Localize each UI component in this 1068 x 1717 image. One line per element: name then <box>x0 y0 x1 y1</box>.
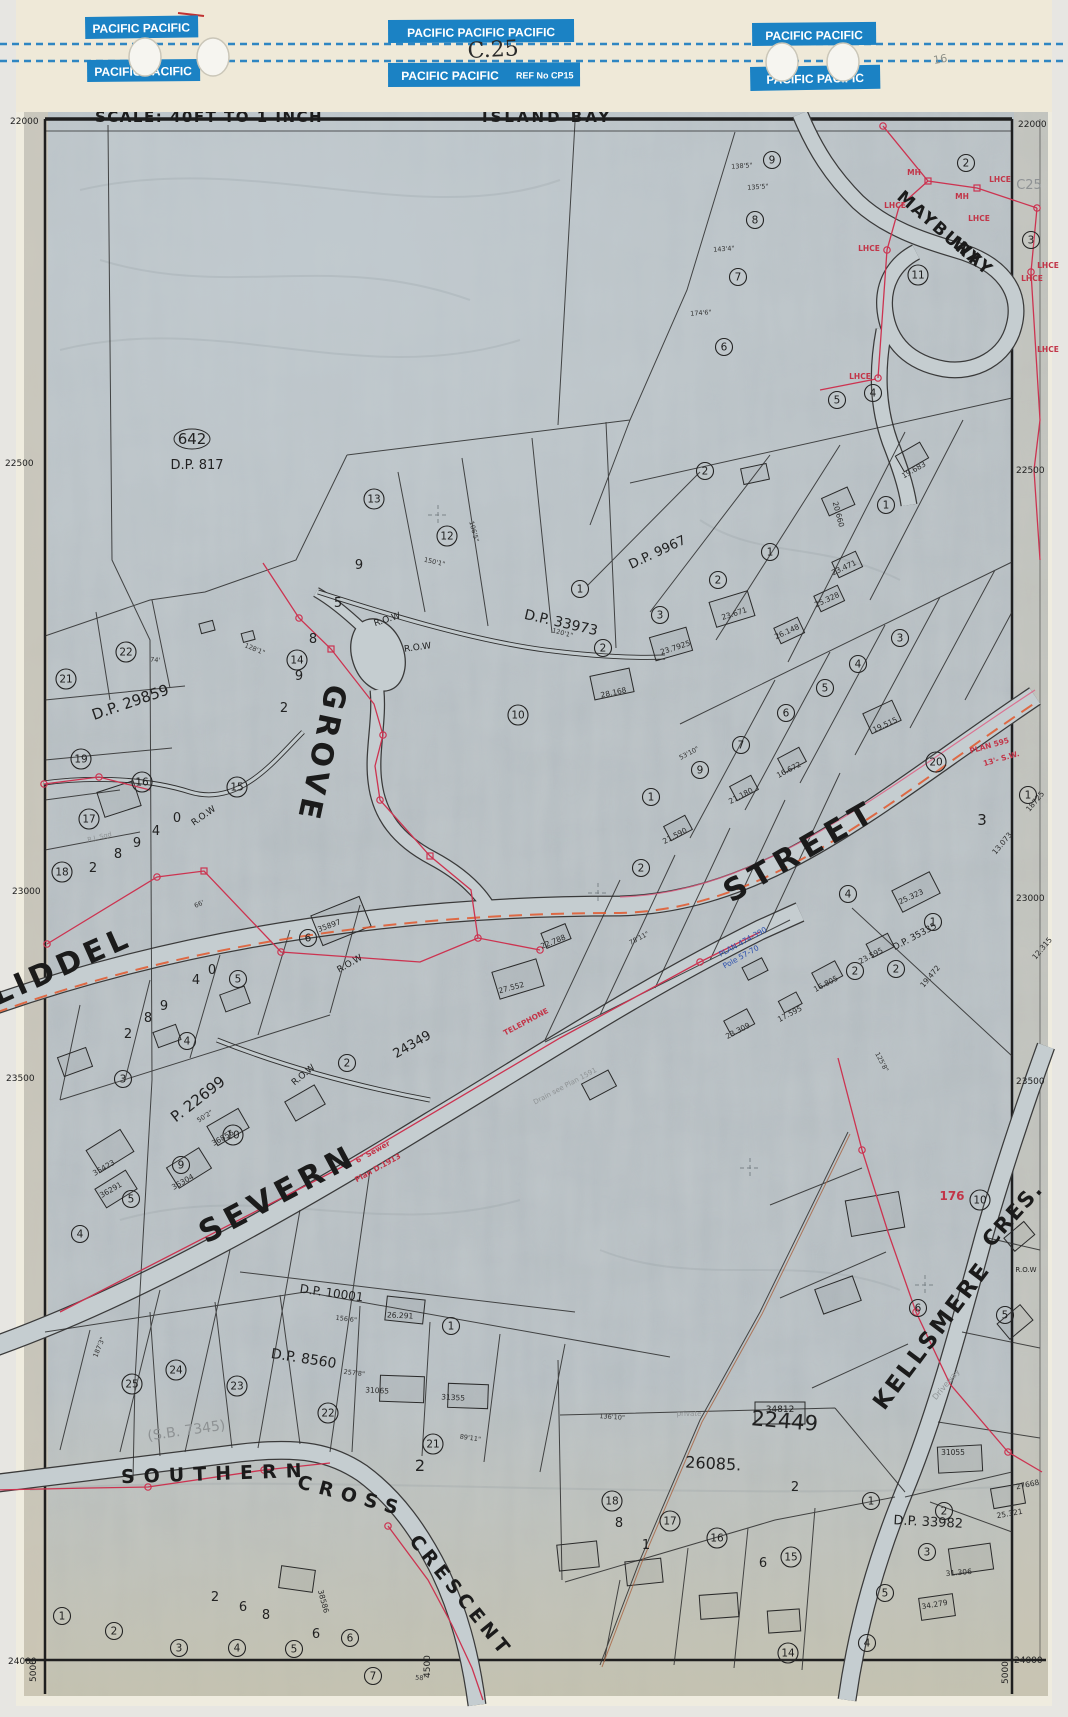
red-utility-note: LHCE <box>1037 261 1059 270</box>
svg-text:15: 15 <box>230 782 243 794</box>
circled-lot-number: 23 <box>227 1376 247 1396</box>
svg-text:6: 6 <box>347 1633 354 1645</box>
circled-lot-number: 11 <box>908 265 928 285</box>
circled-lot-number: 4 <box>865 385 882 402</box>
circled-lot-number: 4 <box>179 1033 196 1050</box>
lot-number-plain: 2 <box>124 1027 132 1042</box>
svg-text:1: 1 <box>59 1611 66 1623</box>
circled-lot-number: 5 <box>230 971 247 988</box>
circled-lot-number: 8 <box>747 212 764 229</box>
grid-coordinate-label: 23000 <box>12 887 41 897</box>
tape-ref-label: REF No CP15 <box>516 70 574 80</box>
svg-text:8: 8 <box>752 215 759 227</box>
svg-text:1: 1 <box>883 500 890 512</box>
red-utility-note: LHCE <box>858 244 880 253</box>
svg-text:3: 3 <box>120 1074 127 1086</box>
circled-lot-number: 6 <box>910 1300 927 1317</box>
circled-lot-number: 1 <box>878 497 895 514</box>
svg-text:7: 7 <box>738 740 745 752</box>
circled-lot-number: 3 <box>171 1640 188 1657</box>
house-number: 31065 <box>365 1385 390 1395</box>
circled-lot-number: 3 <box>919 1544 936 1561</box>
pencil-note: private <box>677 1410 702 1418</box>
svg-text:6: 6 <box>783 708 790 720</box>
circled-lot-number: 1 <box>762 544 779 561</box>
circled-lot-number: 18 <box>602 1491 622 1511</box>
circled-lot-number: 5 <box>286 1641 303 1658</box>
circled-lot-number: 2 <box>710 572 727 589</box>
red-utility-note: LHCE <box>1021 274 1043 283</box>
lot-number-plain: 8 <box>144 1011 152 1026</box>
circled-lot-number: 25 <box>122 1374 142 1394</box>
svg-text:4: 4 <box>234 1643 241 1655</box>
circled-lot-number: 4 <box>850 656 867 673</box>
svg-text:23: 23 <box>230 1381 243 1393</box>
circled-lot-number: 14 <box>778 1643 798 1663</box>
svg-text:2: 2 <box>638 863 645 875</box>
circled-lot-number: 7 <box>365 1668 382 1685</box>
tape-strip-ref: PACIFIC PACIFIC REF No CP15 <box>388 62 580 87</box>
circled-lot-number: 2 <box>697 463 714 480</box>
svg-text:16: 16 <box>135 777 149 789</box>
red-utility-note: LHCE <box>968 214 990 223</box>
circled-lot-number: 24 <box>166 1360 186 1380</box>
lot-number-plain: 6 <box>759 1556 767 1571</box>
grid-coordinate-label: 22500 <box>5 459 34 469</box>
circled-lot-number: 5 <box>123 1191 140 1208</box>
grid-coordinate-label: 23500 <box>1016 1077 1045 1087</box>
plan-label: 26085. <box>685 1453 742 1475</box>
svg-text:4: 4 <box>184 1036 191 1048</box>
svg-text:16: 16 <box>710 1533 724 1545</box>
red-utility-note: MH <box>907 168 921 177</box>
lot-number-plain: 5 <box>334 596 342 611</box>
svg-text:22: 22 <box>119 647 132 659</box>
svg-text:2: 2 <box>702 466 709 478</box>
circled-lot-number: 18 <box>52 862 72 882</box>
svg-text:3: 3 <box>1028 235 1035 247</box>
circled-lot-number: 1 <box>572 581 589 598</box>
svg-text:17: 17 <box>663 1516 676 1528</box>
circled-lot-number: 10 <box>508 705 528 725</box>
svg-text:15: 15 <box>784 1552 797 1564</box>
svg-text:4: 4 <box>845 889 852 901</box>
svg-text:5: 5 <box>834 395 841 407</box>
svg-text:5: 5 <box>235 974 242 986</box>
lot-number-plain: 6 <box>312 1627 320 1642</box>
red-utility-note: LHCE <box>849 372 871 381</box>
lot-number-plain: 9 <box>295 669 303 684</box>
red-utility-note: MH <box>955 192 969 201</box>
svg-text:1: 1 <box>767 547 774 559</box>
svg-text:4: 4 <box>870 388 877 400</box>
pencil-note: C25 <box>1016 178 1042 193</box>
svg-text:1: 1 <box>930 917 937 929</box>
svg-text:24: 24 <box>169 1365 183 1377</box>
svg-text:2: 2 <box>893 964 900 976</box>
svg-text:21: 21 <box>59 674 72 686</box>
lot-number-plain: 2 <box>791 1480 799 1495</box>
grid-coordinate-label: 4500 <box>423 1655 433 1678</box>
svg-text:5: 5 <box>1002 1310 1009 1322</box>
svg-text:10: 10 <box>973 1195 986 1207</box>
svg-text:18: 18 <box>605 1496 618 1508</box>
svg-text:6: 6 <box>915 1303 922 1315</box>
svg-text:19: 19 <box>74 754 87 766</box>
circled-lot-number: 17 <box>79 809 99 829</box>
svg-text:14: 14 <box>290 655 304 667</box>
circled-lot-number: 6 <box>342 1630 359 1647</box>
circled-lot-number: 21 <box>56 669 76 689</box>
svg-text:7: 7 <box>735 272 742 284</box>
svg-text:9: 9 <box>769 155 776 167</box>
sheet-code-handwritten: C.25 <box>467 36 519 64</box>
circled-lot-number: 13 <box>364 489 384 509</box>
circled-lot-number: 15 <box>781 1547 801 1567</box>
circled-lot-number: 22 <box>116 642 136 662</box>
lot-number-plain: 0 <box>208 963 216 978</box>
svg-text:6: 6 <box>305 933 312 945</box>
tape-strip: PACIFIC PACIFIC <box>752 22 876 46</box>
svg-text:9: 9 <box>178 1160 185 1172</box>
circled-lot-number: 9 <box>173 1157 190 1174</box>
circled-lot-number: 4 <box>840 886 857 903</box>
svg-text:1: 1 <box>648 792 655 804</box>
map-canvas: LIDDELSTREETSEVERNGROVEKELLSMERECRES.SOU… <box>0 0 1068 1717</box>
circled-lot-number: 3 <box>892 630 909 647</box>
circled-lot-number: 7 <box>730 269 747 286</box>
svg-text:14: 14 <box>781 1648 795 1660</box>
circled-lot-number: 5 <box>997 1307 1014 1324</box>
svg-text:3: 3 <box>924 1547 931 1559</box>
svg-text:10: 10 <box>511 710 524 722</box>
svg-text:3: 3 <box>176 1643 183 1655</box>
circled-lot-number: 2 <box>958 155 975 172</box>
red-utility-note: LHCE <box>1037 345 1059 354</box>
svg-text:21: 21 <box>426 1439 439 1451</box>
svg-text:25: 25 <box>125 1379 138 1391</box>
svg-text:1: 1 <box>448 1321 455 1333</box>
lot-number-plain: 2 <box>280 701 288 716</box>
circled-lot-number: 7 <box>733 737 750 754</box>
circled-lot-number: 1 <box>54 1608 71 1625</box>
circled-lot-number: 3 <box>1023 232 1040 249</box>
tape-text: PACIFIC PACIFIC <box>92 21 190 36</box>
svg-text:5: 5 <box>822 683 829 695</box>
svg-text:20: 20 <box>929 757 942 769</box>
circled-lot-number: 16 <box>132 772 152 792</box>
svg-text:1: 1 <box>577 584 584 596</box>
lot-number-plain: 9 <box>160 999 168 1014</box>
grid-coordinate-label: 22000 <box>1018 120 1047 130</box>
svg-text:6: 6 <box>721 342 728 354</box>
circled-lot-number: 1 <box>443 1318 460 1335</box>
lot-number-plain: 2 <box>89 861 97 876</box>
lot-number-plain: 1 <box>642 1538 650 1553</box>
circled-lot-number: 14 <box>287 650 307 670</box>
lot-number-plain: 4 <box>192 973 200 988</box>
dimension-label: 135'5" <box>747 182 769 191</box>
lot-number-plain: 2 <box>415 1456 425 1475</box>
svg-text:5: 5 <box>291 1644 298 1656</box>
svg-text:2: 2 <box>852 966 859 978</box>
circled-lot-number: 1 <box>863 1493 880 1510</box>
plan-label: 642 <box>178 430 207 448</box>
svg-text:5: 5 <box>882 1588 889 1600</box>
house-number: 26.291 <box>387 1310 414 1320</box>
svg-text:2: 2 <box>941 1506 948 1518</box>
circled-lot-number: 15 <box>227 777 247 797</box>
plan-label: D.P. 817 <box>170 458 223 473</box>
tape-text: PACIFIC PACIFIC <box>765 28 863 43</box>
circled-lot-number: 12 <box>437 526 457 546</box>
circled-lot-number: 4 <box>229 1640 246 1657</box>
grid-coordinate-label: 23000 <box>1016 894 1045 904</box>
svg-text:9: 9 <box>697 765 704 777</box>
svg-text:12: 12 <box>440 531 453 543</box>
circled-lot-number: 6 <box>300 930 317 947</box>
grid-coordinate-label: 22000 <box>10 117 39 127</box>
circled-lot-number: 2 <box>633 860 650 877</box>
lot-number-plain: 3 <box>977 811 987 829</box>
circled-lot-number: 3 <box>115 1071 132 1088</box>
row-label: R.O.W <box>1015 1266 1036 1274</box>
circled-lot-number: 9 <box>764 152 781 169</box>
svg-text:4: 4 <box>855 659 862 671</box>
circled-lot-number: 5 <box>829 392 846 409</box>
grid-coordinate-label: 24000 <box>1014 1656 1043 1666</box>
circled-lot-number: 16 <box>707 1528 727 1548</box>
lot-number-plain: 0 <box>173 811 181 826</box>
svg-text:2: 2 <box>963 158 970 170</box>
svg-text:11: 11 <box>911 270 924 282</box>
svg-text:17: 17 <box>82 814 95 826</box>
grid-coordinate-label: 23500 <box>6 1074 35 1084</box>
svg-text:2: 2 <box>715 575 722 587</box>
circled-lot-number: 1 <box>925 914 942 931</box>
grid-coordinate-label: 5000 <box>1001 1661 1011 1684</box>
tape-strip: PACIFIC PACIFIC <box>85 15 198 39</box>
svg-text:4: 4 <box>864 1638 871 1650</box>
grid-coordinate-label: 22500 <box>1016 466 1045 476</box>
dimension-label: 74' <box>150 656 161 665</box>
dimension-label: 143'4" <box>713 244 735 253</box>
circled-lot-number: 5 <box>877 1585 894 1602</box>
circled-lot-number: 4 <box>72 1226 89 1243</box>
circled-lot-number: 2 <box>595 640 612 657</box>
svg-text:2: 2 <box>600 643 607 655</box>
lot-number-plain: 2 <box>211 1590 219 1605</box>
lot-number-plain: 9 <box>133 836 141 851</box>
svg-text:7: 7 <box>370 1671 377 1683</box>
svg-text:3: 3 <box>897 633 904 645</box>
svg-text:22: 22 <box>321 1408 334 1420</box>
svg-text:13: 13 <box>367 494 380 506</box>
svg-text:5: 5 <box>128 1194 135 1206</box>
svg-text:2: 2 <box>344 1058 351 1070</box>
circled-lot-number: 9 <box>692 762 709 779</box>
lot-number-plain: 6 <box>239 1600 247 1615</box>
circled-lot-number: 4 <box>859 1635 876 1652</box>
svg-text:1: 1 <box>868 1496 875 1508</box>
circled-lot-number: 21 <box>423 1434 443 1454</box>
svg-text:18: 18 <box>55 867 68 879</box>
red-utility-note: 176 <box>939 1189 964 1203</box>
svg-text:2: 2 <box>111 1626 118 1638</box>
circled-lot-number: 10 <box>970 1190 990 1210</box>
circled-lot-number: 3 <box>652 607 669 624</box>
lot-number-plain: 9 <box>355 558 363 573</box>
dimension-label: 138'5" <box>731 161 753 170</box>
lot-number-plain: 8 <box>309 632 317 647</box>
lot-number-plain: 8 <box>615 1516 623 1531</box>
tape-text: PACIFIC PACIFIC <box>401 69 499 83</box>
scanned-cadastral-map-sheet: LIDDELSTREETSEVERNGROVEKELLSMERECRES.SOU… <box>0 0 1068 1717</box>
circled-lot-number: 6 <box>716 339 733 356</box>
house-number: 31055 <box>941 1448 965 1457</box>
circled-lot-number: 2 <box>106 1623 123 1640</box>
circled-lot-number: 1 <box>643 789 660 806</box>
lot-number-plain: 8 <box>114 847 122 862</box>
circled-lot-number: 2 <box>936 1503 953 1520</box>
plan-label: 34812 <box>766 1405 795 1415</box>
circled-lot-number: 22 <box>318 1403 338 1423</box>
circled-lot-number: 17 <box>660 1511 680 1531</box>
svg-text:3: 3 <box>657 610 664 622</box>
circled-lot-number: 19 <box>71 749 91 769</box>
house-number: 31355 <box>441 1392 466 1402</box>
circled-lot-number: 5 <box>817 680 834 697</box>
red-utility-note: LHCE <box>884 201 906 210</box>
lot-number-plain: 8 <box>262 1608 270 1623</box>
red-utility-note: LHCE <box>989 175 1011 184</box>
circled-lot-number: 2 <box>339 1055 356 1072</box>
grid-coordinate-label: 5000 <box>29 1659 39 1682</box>
circled-lot-number: 20 <box>926 752 946 772</box>
lot-number-plain: 4 <box>152 824 160 839</box>
circled-lot-number: 2 <box>888 961 905 978</box>
dimension-label: 174'6" <box>690 308 712 317</box>
circled-lot-number: 6 <box>778 705 795 722</box>
svg-text:4: 4 <box>77 1229 84 1241</box>
